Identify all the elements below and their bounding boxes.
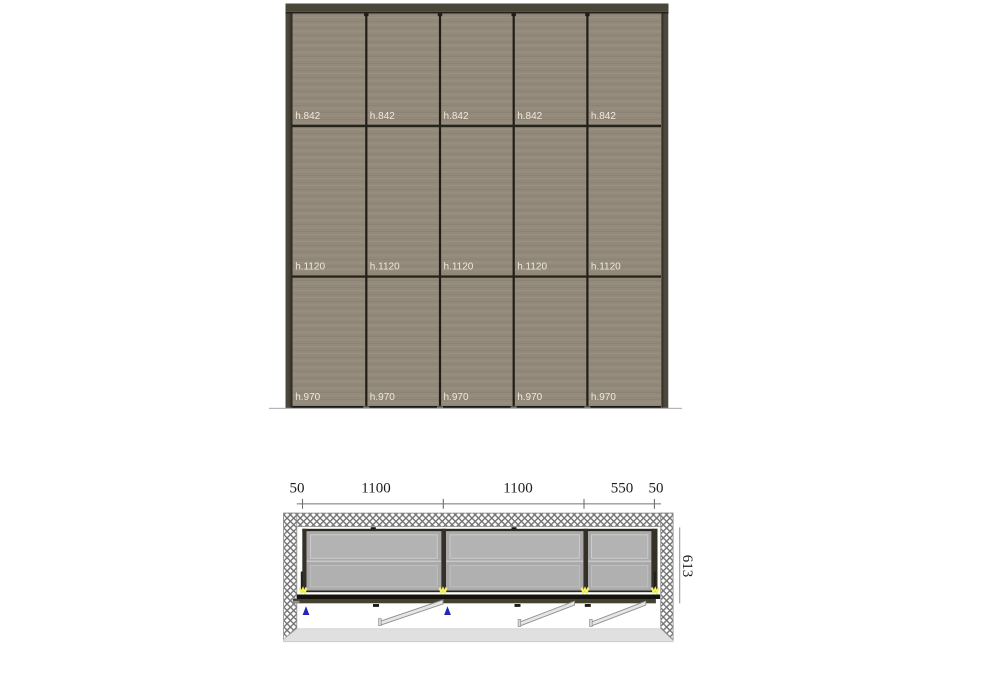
- svg-text:h.842: h.842: [517, 111, 542, 122]
- svg-text:h.1120: h.1120: [370, 262, 400, 273]
- svg-text:h.1120: h.1120: [591, 262, 621, 273]
- svg-text:h.842: h.842: [591, 111, 616, 122]
- svg-text:613: 613: [679, 555, 695, 578]
- svg-text:h.970: h.970: [591, 392, 616, 403]
- svg-text:h.842: h.842: [295, 111, 320, 122]
- svg-text:550: 550: [611, 481, 634, 497]
- svg-text:h.970: h.970: [517, 392, 542, 403]
- svg-text:h.970: h.970: [444, 392, 469, 403]
- svg-text:50: 50: [649, 481, 664, 497]
- svg-text:h.1120: h.1120: [295, 262, 325, 273]
- svg-text:h.842: h.842: [444, 111, 469, 122]
- svg-text:1100: 1100: [503, 481, 532, 497]
- svg-text:h.970: h.970: [370, 392, 395, 403]
- svg-text:50: 50: [290, 481, 305, 497]
- svg-text:h.970: h.970: [295, 392, 320, 403]
- svg-text:h.842: h.842: [370, 111, 395, 122]
- svg-text:h.1120: h.1120: [517, 262, 547, 273]
- svg-text:1100: 1100: [361, 481, 390, 497]
- svg-text:h.1120: h.1120: [444, 262, 474, 273]
